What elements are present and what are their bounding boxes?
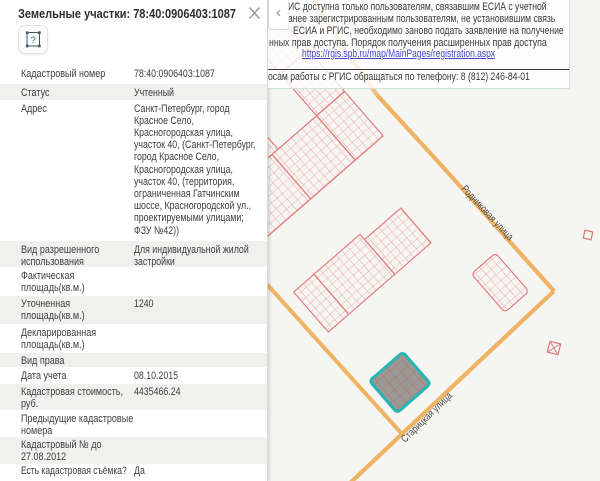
svg-text:?: ? bbox=[31, 35, 36, 46]
